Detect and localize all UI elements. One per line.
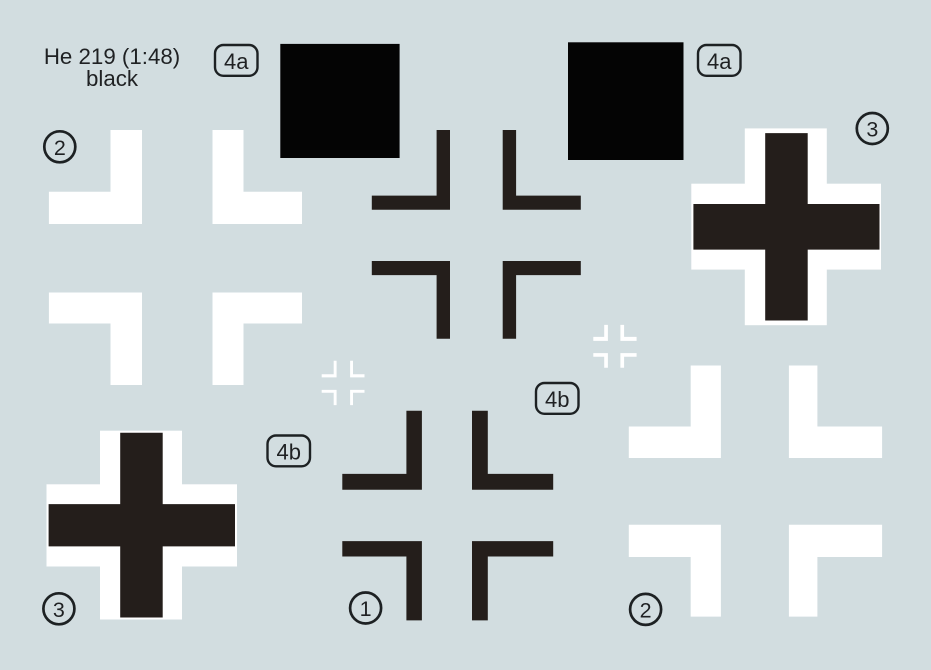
svg-text:4b: 4b [276, 440, 300, 465]
svg-text:3: 3 [53, 598, 65, 622]
svg-text:4a: 4a [707, 49, 732, 74]
svg-text:2: 2 [54, 136, 66, 160]
svg-text:1: 1 [360, 597, 372, 621]
svg-text:4a: 4a [224, 49, 249, 74]
svg-text:4b: 4b [545, 387, 569, 412]
svg-text:black: black [86, 66, 139, 91]
svg-text:2: 2 [640, 598, 652, 622]
svg-text:3: 3 [866, 118, 878, 142]
